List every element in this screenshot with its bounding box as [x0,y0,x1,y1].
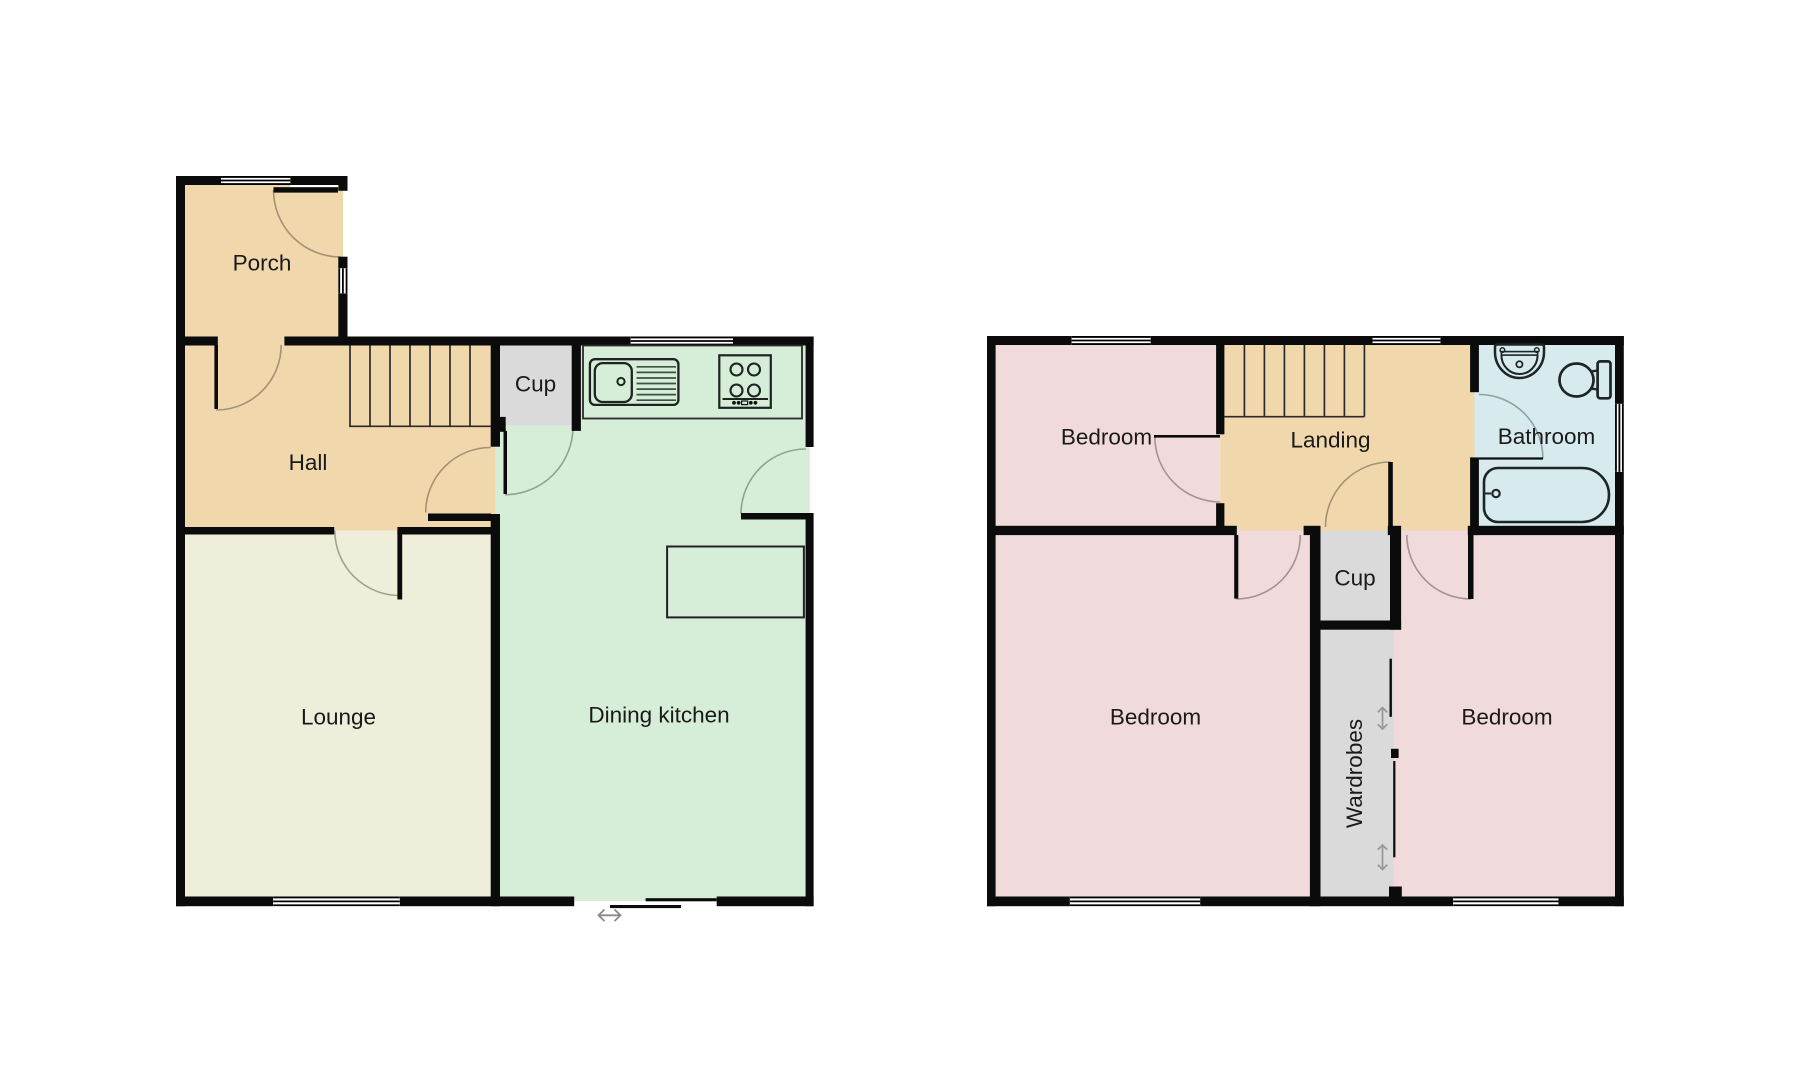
svg-text:Cup: Cup [515,372,556,397]
svg-text:Wardrobes: Wardrobes [1342,719,1367,828]
svg-text:Hall: Hall [289,450,328,475]
svg-text:Bedroom: Bedroom [1061,425,1152,450]
svg-text:Bedroom: Bedroom [1461,705,1552,730]
svg-text:Porch: Porch [233,250,292,275]
svg-text:Dining kitchen: Dining kitchen [588,703,729,728]
svg-text:Bathroom: Bathroom [1498,424,1596,449]
svg-text:Cup: Cup [1334,566,1375,591]
svg-text:Bedroom: Bedroom [1110,705,1201,730]
svg-text:Lounge: Lounge [301,705,376,730]
svg-text:Landing: Landing [1290,428,1370,453]
